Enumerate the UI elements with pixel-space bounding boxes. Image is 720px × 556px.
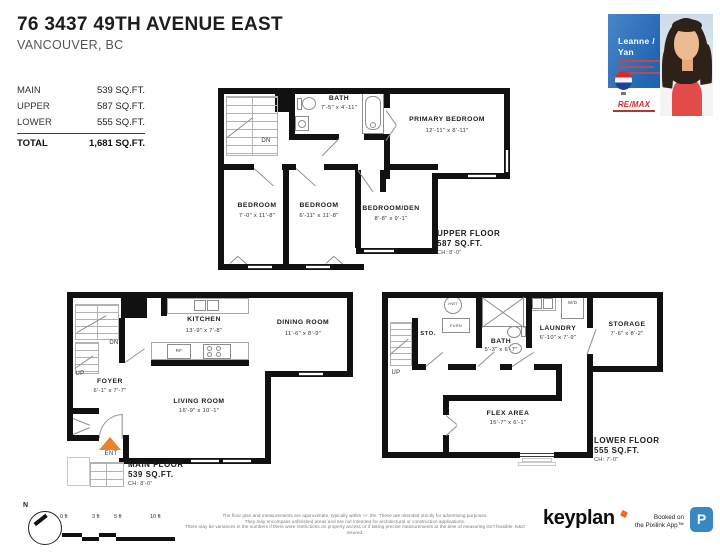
scale-tick-label: 10 ft	[150, 514, 161, 520]
room-label: BATH	[477, 338, 525, 345]
washer-dryer-label: W/D	[561, 300, 584, 305]
wall	[412, 318, 418, 364]
upper-floor-label-block: UPPER FLOOR 587 SQ.FT. CH: 8'-0"	[437, 229, 500, 257]
laundry-sink-icon	[532, 298, 542, 309]
room-dims: 6'-1" x 7'-7"	[82, 388, 138, 394]
fridge-label: RF	[167, 348, 191, 353]
agent-photo	[660, 14, 713, 116]
room-label: PRIMARY BEDROOM	[386, 116, 508, 123]
scale-bar	[116, 537, 175, 541]
booked-line: the Pixilink App™	[620, 522, 684, 530]
area-summary-table: MAIN539 SQ.FT. UPPER587 SQ.FT. LOWER555 …	[17, 84, 145, 151]
page-title: 76 3437 49TH AVENUE EAST	[17, 14, 283, 36]
scale-bar	[82, 537, 99, 541]
wall	[380, 170, 386, 192]
wall	[265, 377, 271, 464]
wall	[347, 292, 353, 377]
room-label: LIVING ROOM	[156, 398, 242, 405]
storage-closet-label: STO.	[413, 331, 443, 337]
wall	[448, 364, 476, 370]
stove-burner-icon	[216, 346, 221, 351]
window	[248, 265, 272, 269]
door-leaf	[445, 425, 457, 436]
wall	[587, 366, 663, 372]
wall	[224, 164, 254, 170]
wall	[275, 88, 295, 112]
scale-tick-label: 3 ft	[92, 514, 100, 520]
stairs-up-label: UP	[70, 371, 90, 377]
agent-contact-line	[618, 66, 654, 68]
row-value: 587 SQ.FT.	[97, 100, 145, 116]
room-dims: 15'-7" x 6'-1"	[472, 420, 544, 426]
keyplan-logo: keyplan	[543, 507, 615, 530]
wall	[587, 366, 593, 458]
remax-tagline	[613, 110, 655, 112]
stove-burner-icon	[207, 346, 212, 351]
furnace-label: FURN	[442, 323, 470, 328]
agent-contact-line	[618, 60, 660, 62]
table-row: MAIN539 SQ.FT.	[17, 84, 145, 100]
disclaimer-line: There may be variances in the numbers if…	[185, 524, 525, 535]
wall	[382, 452, 520, 458]
floor-ceiling: CH: 7'-0"	[594, 456, 660, 464]
sink-icon	[298, 120, 306, 128]
wall	[289, 134, 339, 140]
door-leaf	[446, 415, 458, 425]
total-value: 1,681 SQ.FT.	[89, 137, 145, 151]
stairs-up-label: UP	[386, 370, 406, 376]
remax-balloon-icon	[615, 71, 632, 90]
room-dims: 13'-9" x 7'-8"	[164, 328, 244, 334]
wall	[218, 88, 224, 270]
table-row: UPPER587 SQ.FT.	[17, 100, 145, 116]
room-dims: 7'-5" x 4'-11"	[304, 105, 374, 111]
row-label: UPPER	[17, 100, 50, 116]
kitchen-island	[151, 342, 249, 360]
hot-water-tank-label: HWT	[444, 302, 462, 306]
wall	[443, 435, 449, 458]
door-leaf	[254, 168, 274, 186]
stove-burner-icon	[207, 352, 212, 357]
room-label: FOYER	[85, 378, 135, 385]
door-leaf	[478, 351, 495, 367]
scale-bar	[99, 533, 116, 537]
window	[520, 453, 554, 457]
wall	[443, 401, 449, 415]
stairs-dn-label: DN	[255, 138, 277, 144]
row-value: 555 SQ.FT.	[97, 116, 145, 132]
wall	[67, 292, 353, 298]
page-subtitle: VANCOUVER, BC	[17, 38, 123, 52]
floor-name: MAIN FLOOR	[128, 460, 184, 470]
stairs-icon	[226, 96, 278, 156]
total-label: TOTAL	[17, 137, 48, 151]
wall	[151, 360, 249, 366]
entry-arrow-icon	[99, 437, 121, 450]
window	[468, 174, 496, 178]
window	[364, 249, 394, 253]
stairs-icon	[90, 462, 124, 487]
booked-on-text: Booked on the Pixilink App™	[620, 514, 684, 530]
entry-door-arc	[99, 414, 123, 438]
wall	[121, 292, 147, 318]
window	[505, 150, 509, 172]
room-dims: 12'-11" x 8'-11"	[386, 128, 508, 134]
door-leaf	[296, 168, 316, 186]
wall	[67, 408, 99, 414]
floor-name: UPPER FLOOR	[437, 229, 500, 239]
floor-ceiling: CH: 8'-0"	[437, 249, 500, 257]
wall	[500, 364, 512, 370]
pixilink-app-icon: P	[690, 507, 713, 532]
window	[299, 372, 323, 376]
floor-plan-page: 76 3437 49TH AVENUE EAST VANCOUVER, BC M…	[0, 0, 720, 556]
wall	[218, 264, 364, 270]
bathtub-drain-icon	[370, 122, 376, 128]
table-row: LOWER555 SQ.FT.	[17, 116, 145, 132]
main-floor-label-block: MAIN FLOOR 539 SQ.FT. CH: 8'-0"	[128, 460, 184, 488]
row-label: MAIN	[17, 84, 41, 100]
lower-floor-label-block: LOWER FLOOR 555 SQ.FT. CH: 7'-0"	[594, 436, 660, 464]
hair-fringe	[672, 19, 702, 32]
room-label: BEDROOM/DEN	[345, 205, 437, 212]
window	[306, 265, 330, 269]
row-label: LOWER	[17, 116, 52, 132]
compass-north-label: N	[23, 502, 28, 509]
room-label: STORAGE	[594, 321, 660, 328]
room-label: BATH	[316, 95, 362, 102]
stove-burner-icon	[216, 352, 221, 357]
floor-area: 587 SQ.FT.	[437, 239, 500, 249]
wall	[67, 435, 99, 441]
floor-area: 555 SQ.FT.	[594, 446, 660, 456]
scale-bar	[62, 533, 82, 537]
stairs-dn-label: DN	[103, 340, 125, 346]
entry-step	[518, 462, 556, 466]
wall	[587, 292, 593, 328]
room-dims: 5'-3" x 6'-7"	[473, 347, 529, 353]
laundry-sink-icon	[543, 298, 553, 309]
room-label: DINING ROOM	[260, 319, 346, 326]
door-leaf	[73, 418, 90, 426]
room-dims: 6'-10" x 7'-9"	[522, 335, 594, 341]
wall	[161, 292, 167, 316]
room-dims: 11'-6" x 8'-9"	[260, 331, 346, 337]
entry-porch	[67, 457, 90, 486]
door-leaf	[426, 352, 444, 367]
door-leaf	[322, 138, 340, 156]
door-leaf	[512, 352, 535, 367]
room-dims: 16'-9" x 10'-1"	[156, 408, 242, 414]
kitchen-sink-icon	[194, 300, 206, 311]
wall	[443, 395, 562, 401]
agent-name-line2: Yan	[618, 47, 634, 57]
toilet-icon	[507, 326, 521, 338]
agent-card: Leanne / Yan RE/MAX	[608, 14, 713, 116]
booked-line: Booked on	[620, 514, 684, 522]
kitchen-sink-icon	[207, 300, 219, 311]
disclaimer-line: The floor plan and measurements are appr…	[185, 513, 525, 519]
window	[223, 459, 251, 463]
door-leaf	[125, 348, 145, 363]
scale-tick-label: 0 ft	[60, 514, 68, 520]
wall	[218, 88, 510, 94]
floor-area: 539 SQ.FT.	[128, 470, 184, 480]
entry-label: ENT	[96, 451, 126, 457]
room-label: LAUNDRY	[526, 325, 590, 332]
floor-ceiling: CH: 8'-0"	[128, 480, 184, 488]
table-total-row: TOTAL1,681 SQ.FT.	[17, 137, 145, 151]
agent-name-line1: Leanne /	[618, 36, 655, 46]
wall	[324, 164, 358, 170]
wall	[534, 364, 556, 370]
room-dims: 7'-6" x 8'-2"	[594, 331, 660, 337]
wall	[384, 88, 390, 108]
disclaimer-text: The floor plan and measurements are appr…	[185, 513, 525, 535]
room-label: KITCHEN	[164, 316, 244, 323]
stairs-icon	[75, 304, 119, 340]
remax-wordmark: RE/MAX	[608, 100, 660, 109]
wall	[386, 164, 438, 170]
wall	[587, 354, 593, 366]
room-dims: 8'-8" x 9'-1"	[345, 216, 437, 222]
room-label: FLEX AREA	[475, 410, 541, 417]
divider	[17, 133, 145, 134]
wall	[412, 364, 426, 370]
window	[191, 459, 219, 463]
remax-balloon-basket	[621, 92, 626, 95]
door-leaf	[121, 415, 122, 439]
row-value: 539 SQ.FT.	[97, 84, 145, 100]
floor-name: LOWER FLOOR	[594, 436, 660, 446]
scale-tick-label: 5 ft	[114, 514, 122, 520]
